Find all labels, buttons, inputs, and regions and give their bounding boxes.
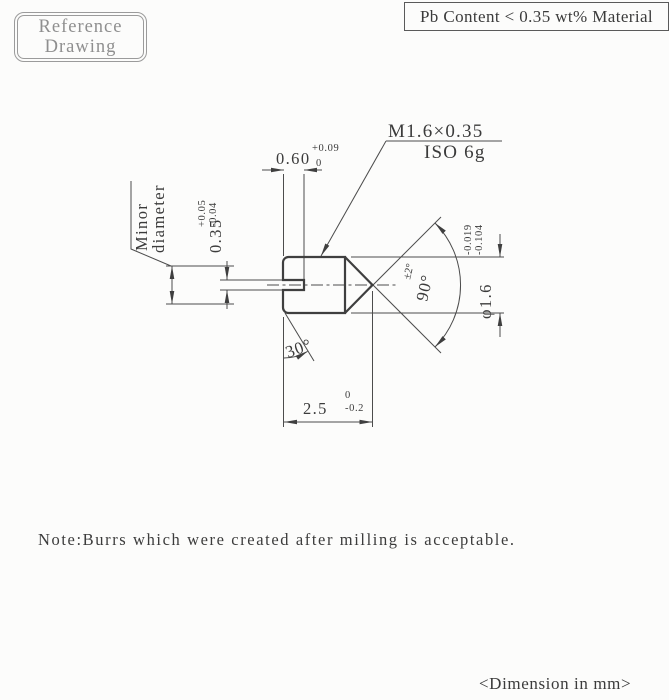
slot-width-lower-tol: -0.04 <box>208 202 219 227</box>
length-lower-tol: -0.2 <box>345 403 364 414</box>
slot-depth-upper-tol: +0.09 <box>312 143 339 154</box>
major-diameter-lower-tol: -0.104 <box>474 224 485 255</box>
slot-depth-lower-tol: 0 <box>316 158 322 169</box>
chamfer-bottom-left <box>283 308 289 314</box>
length-upper-tol: 0 <box>345 390 351 401</box>
dimension-lines <box>131 141 504 427</box>
cone-angle-tol: ±2° <box>401 262 416 280</box>
thread-callout: M1.6×0.35 <box>388 121 483 142</box>
major-diameter-value: φ1.6 <box>476 283 495 319</box>
set-screw-technical-drawing: M1.6×0.35 ISO 6g 0.60 +0.09 0 Minor diam… <box>0 0 669 700</box>
chamfer-top-left <box>283 257 289 263</box>
units-note: <Dimension in mm> <box>479 674 631 694</box>
cone-angle-value: 90° <box>412 273 437 303</box>
arrowheads <box>170 168 503 425</box>
thread-fit: ISO 6g <box>424 142 486 163</box>
minor-diameter-label-line2: diameter <box>149 184 168 253</box>
slot-width-upper-tol: +0.05 <box>197 200 208 227</box>
major-diameter-upper-tol: -0.019 <box>463 224 474 255</box>
slot-depth-value: 0.60 <box>276 149 310 168</box>
burr-note: Note:Burrs which were created after mill… <box>38 530 638 550</box>
length-value: 2.5 <box>303 399 328 418</box>
chamfer-angle-value: 30° <box>283 335 315 362</box>
